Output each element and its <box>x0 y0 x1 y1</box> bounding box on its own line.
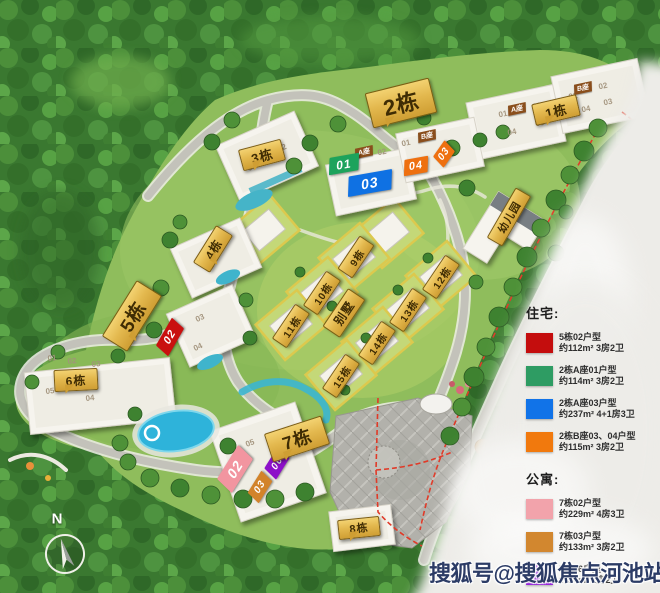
watermark: 搜狐号@搜狐焦点河池站 <box>429 556 660 588</box>
unit-number: 01 <box>401 138 412 149</box>
legend-item-desc: 约112m² 3房2卫 <box>559 343 624 354</box>
legend-item-desc: 约115m² 3房2卫 <box>559 442 636 453</box>
legend-item: 2栋B座03、04户型 约115m² 3房2卫 <box>526 431 658 453</box>
legend-item: 2栋A座01户型 约114m² 3房2卫 <box>526 365 658 387</box>
legend-item-desc: 约133m² 3房2卫 <box>559 542 625 553</box>
legend-swatch <box>526 499 553 519</box>
legend-item-desc: 约237m² 4+1房3卫 <box>559 409 635 420</box>
legend-item-name: 7栋03户型 <box>559 531 625 542</box>
legend-item: 2栋A座03户型 约237m² 4+1房3卫 <box>526 398 658 420</box>
unit-number: 02 <box>67 356 77 366</box>
legend-item-name: 2栋B座03、04户型 <box>559 431 636 442</box>
legend-swatch <box>526 432 553 452</box>
unit-number: 04 <box>507 127 518 138</box>
legend-swatch <box>526 399 553 419</box>
unit-number: 01 <box>47 353 57 363</box>
unit-number: 04 <box>581 104 592 115</box>
legend-item-desc: 约114m² 3房2卫 <box>559 376 624 387</box>
legend-item: 7栋02户型 约229m² 4房3卫 <box>526 498 658 520</box>
legend-section-apartment: 公寓: <box>526 469 658 488</box>
legend: 住宅: 5栋02户型 约112m² 3房2卫 2栋A座01户型 约114m² 3… <box>526 303 658 593</box>
legend-item-desc: 约229m² 4房3卫 <box>559 509 625 520</box>
legend-item: 7栋03户型 约133m² 3房2卫 <box>526 531 658 553</box>
building-banner-6: 6栋 <box>53 368 98 392</box>
unit-number: 03 <box>603 97 614 108</box>
compass-north-label: N <box>52 511 63 528</box>
site-plan-page: 2栋 1栋 3栋 4栋 5栋 6栋 7栋 8栋 9栋 10栋 11栋 12栋 1… <box>0 0 660 593</box>
legend-item-name: 2栋A座01户型 <box>559 365 624 376</box>
legend-swatch <box>526 366 553 386</box>
legend-item-name: 7栋02户型 <box>559 498 625 509</box>
legend-item-name: 2栋A座03户型 <box>559 398 635 409</box>
legend-section-residential: 住宅: <box>526 303 658 322</box>
legend-swatch <box>526 333 553 353</box>
unit-number: 01 <box>498 109 509 120</box>
unit-number: 04 <box>85 393 95 403</box>
unit-number: 02 <box>377 147 388 158</box>
legend-item-name: 5栋02户型 <box>559 332 624 343</box>
legend-swatch <box>526 532 553 552</box>
legend-item: 5栋02户型 约112m² 3房2卫 <box>526 332 658 354</box>
unit-number: 02 <box>598 81 609 92</box>
